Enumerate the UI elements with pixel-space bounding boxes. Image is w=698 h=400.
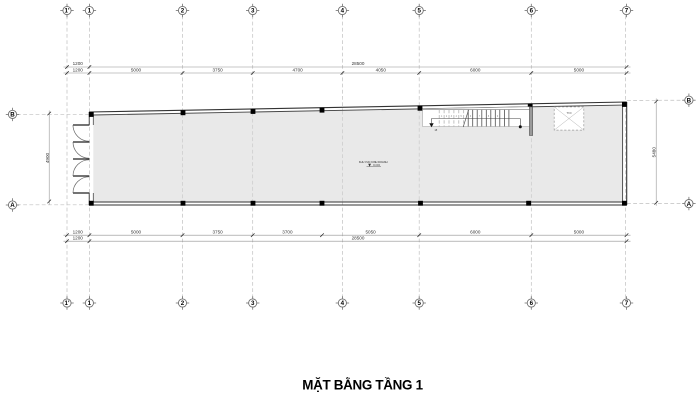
svg-text:B: B: [10, 112, 15, 119]
svg-text:3: 3: [251, 8, 255, 15]
svg-text:1': 1': [65, 300, 70, 307]
svg-text:TOI: TOI: [566, 111, 571, 115]
svg-text:4: 4: [341, 300, 345, 307]
svg-text:7: 7: [625, 300, 629, 307]
svg-text:3750: 3750: [212, 67, 223, 72]
svg-text:5480: 5480: [651, 147, 656, 158]
svg-text:1200: 1200: [73, 61, 84, 66]
svg-text:KHU VUC KINH DOANH: KHU VUC KINH DOANH: [359, 160, 388, 164]
svg-text:5000: 5000: [574, 67, 585, 72]
svg-text:28500: 28500: [352, 235, 365, 240]
svg-text:4: 4: [341, 8, 345, 15]
svg-text:2: 2: [181, 300, 185, 307]
svg-text:6000: 6000: [470, 229, 481, 234]
svg-text:4900: 4900: [45, 152, 50, 163]
svg-text:5: 5: [417, 300, 421, 307]
svg-text:A: A: [687, 201, 692, 208]
svg-text:3: 3: [251, 300, 255, 307]
svg-text:6000: 6000: [470, 67, 481, 72]
svg-text:1200: 1200: [73, 67, 84, 72]
svg-text:5000: 5000: [131, 67, 142, 72]
svg-text:3700: 3700: [282, 229, 293, 234]
svg-text:1: 1: [88, 8, 92, 15]
svg-text:3750: 3750: [212, 229, 223, 234]
svg-text:6: 6: [530, 8, 534, 15]
svg-text:5050: 5050: [365, 229, 376, 234]
svg-text:MẶT BẰNG TẦNG 1: MẶT BẰNG TẦNG 1: [302, 378, 423, 393]
svg-text:1: 1: [88, 300, 92, 307]
svg-text:1200: 1200: [73, 229, 84, 234]
svg-text:2: 2: [181, 8, 185, 15]
svg-text:5000: 5000: [574, 229, 585, 234]
svg-text:28500: 28500: [352, 61, 365, 66]
svg-text:4050: 4050: [376, 67, 387, 72]
svg-text:B: B: [687, 97, 692, 104]
svg-text:6: 6: [530, 300, 534, 307]
svg-text:A: A: [10, 202, 15, 209]
svg-text:1200: 1200: [73, 235, 84, 240]
svg-text:±0.000: ±0.000: [373, 165, 381, 167]
svg-text:5: 5: [417, 8, 421, 15]
svg-text:4700: 4700: [292, 67, 303, 72]
svg-text:1': 1': [65, 8, 70, 15]
svg-text:7: 7: [625, 8, 629, 15]
svg-text:5000: 5000: [131, 229, 142, 234]
